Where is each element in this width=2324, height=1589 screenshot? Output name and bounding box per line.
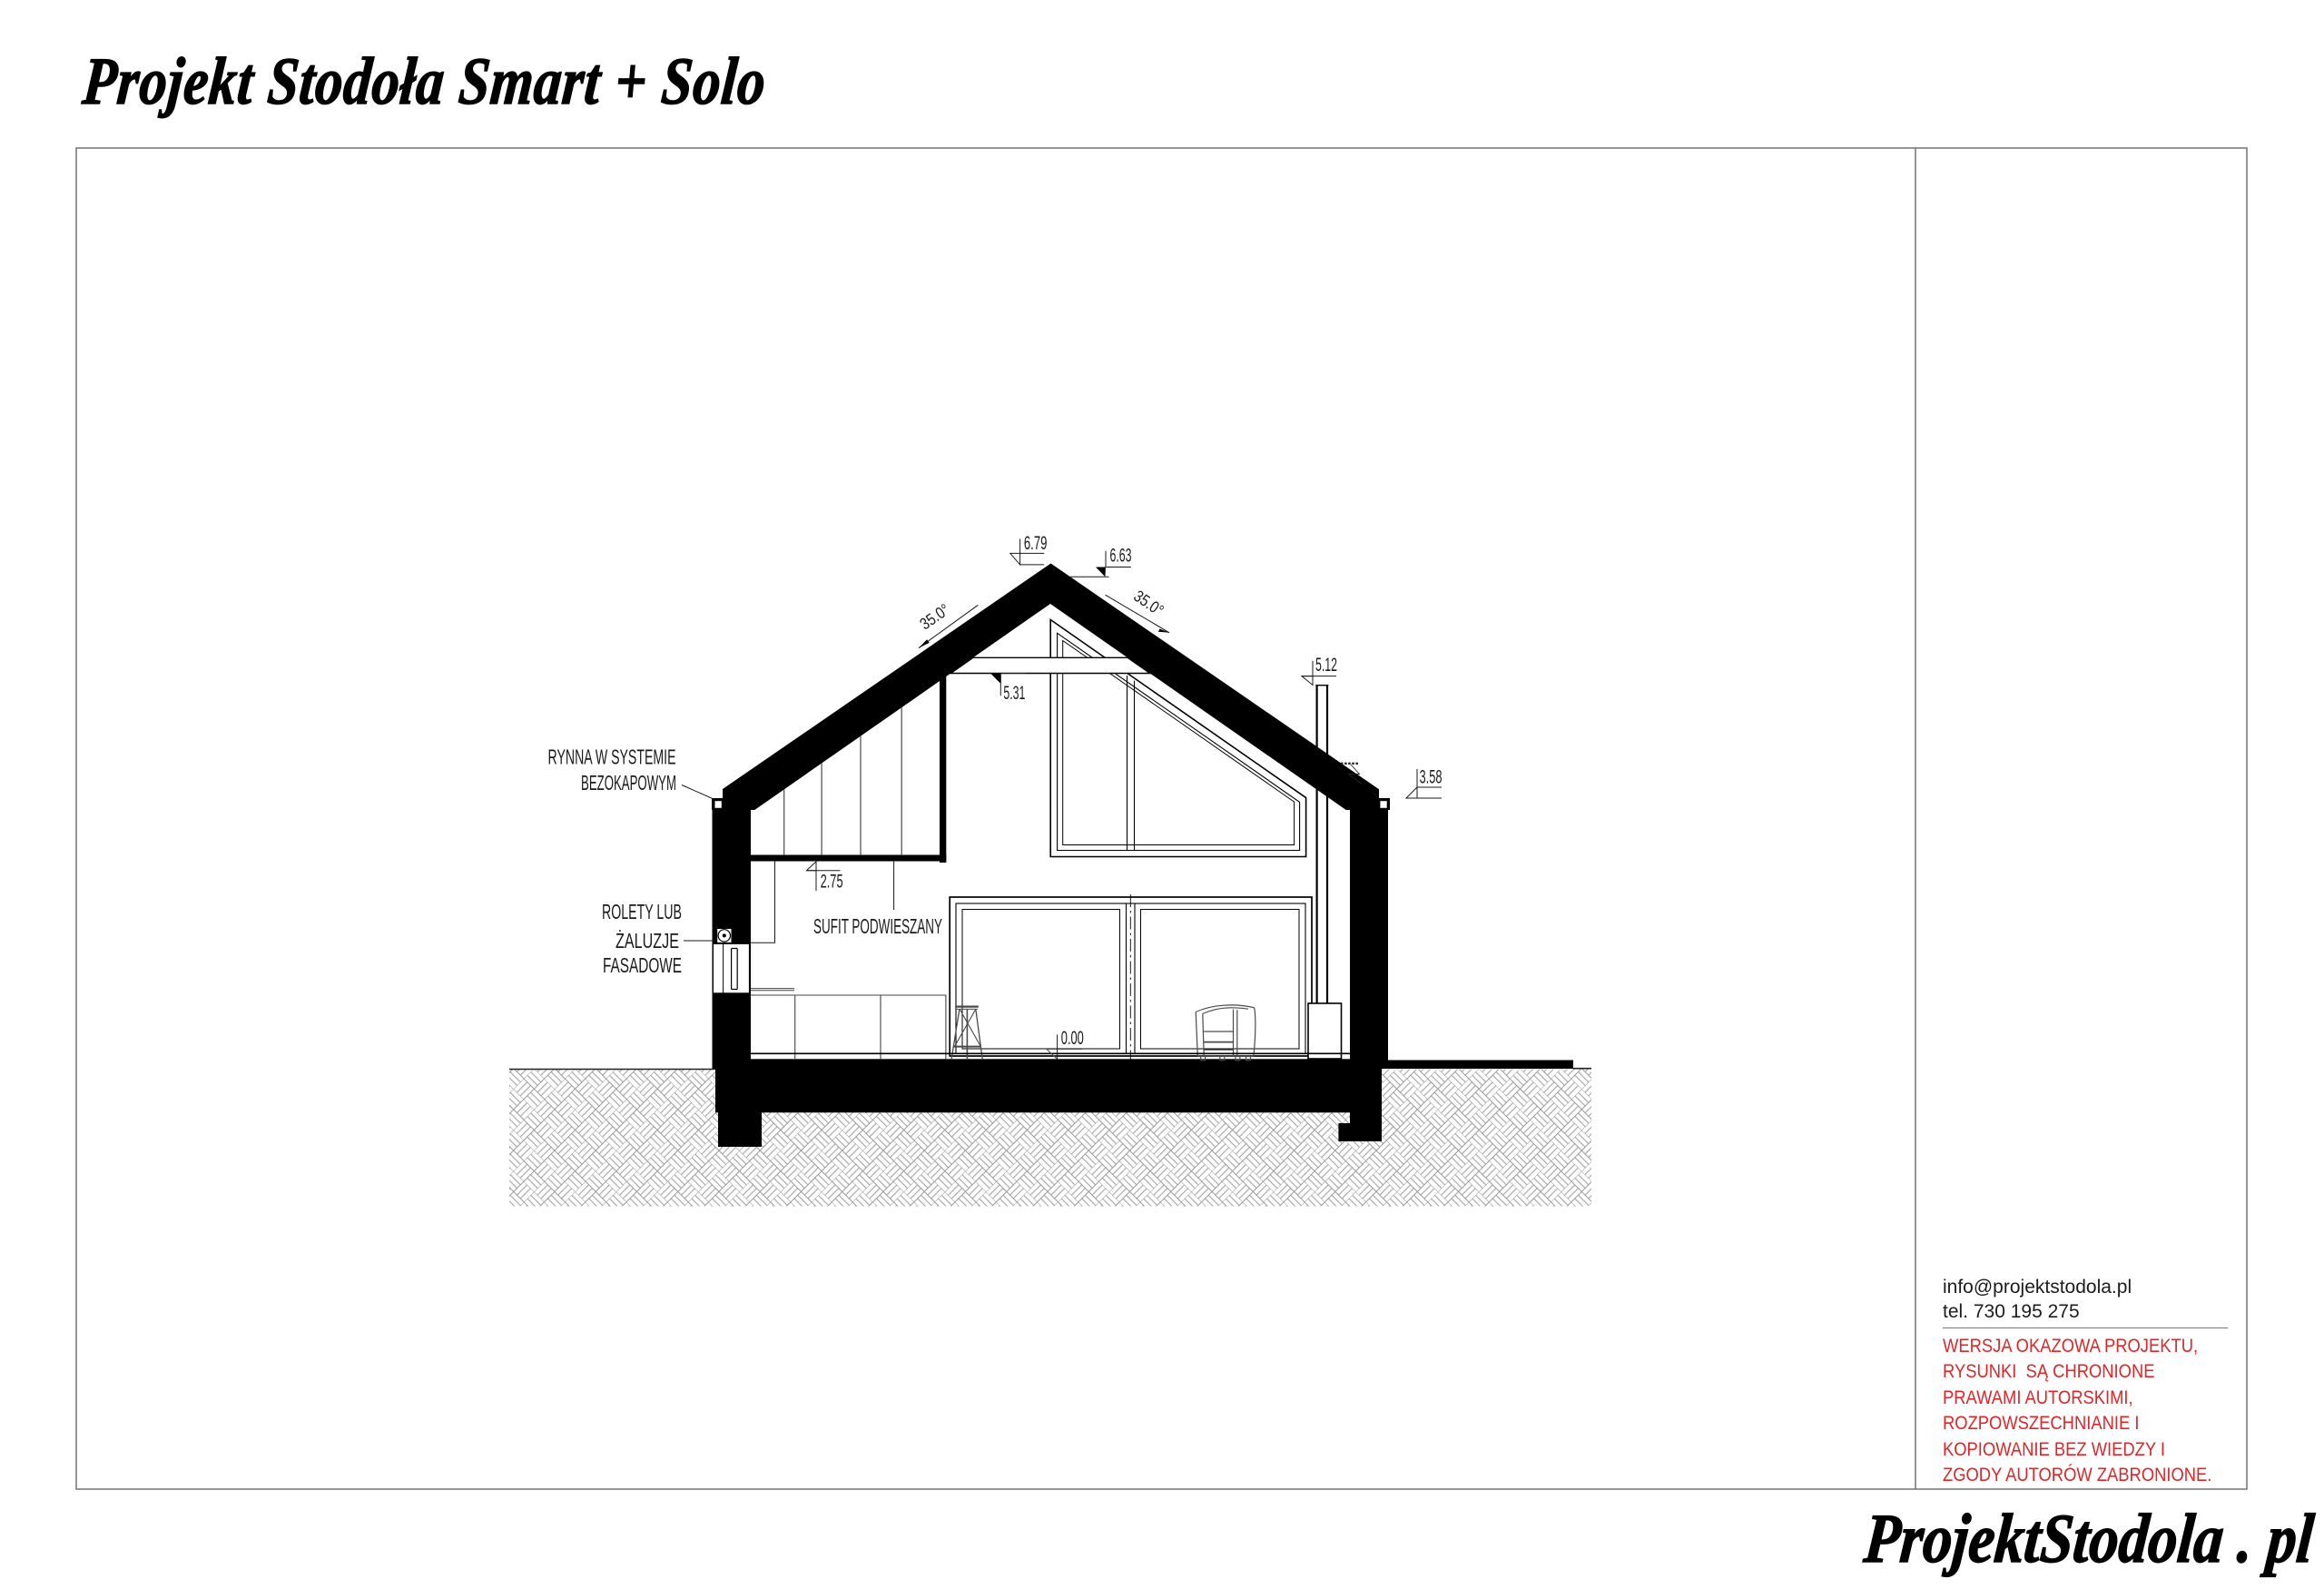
svg-text:BEZOKAPOWYM: BEZOKAPOWYM <box>581 771 676 794</box>
svg-text:ROLETY LUB: ROLETY LUB <box>602 900 682 923</box>
svg-text:ŻALUZJE: ŻALUZJE <box>615 929 679 952</box>
svg-text:SUFIT PODWIESZANY: SUFIT PODWIESZANY <box>813 914 942 938</box>
svg-text:5.31: 5.31 <box>1003 683 1025 704</box>
svg-text:3.58: 3.58 <box>1420 767 1443 788</box>
svg-text:5.12: 5.12 <box>1315 655 1337 676</box>
svg-text:RYNNA W SYSTEMIE: RYNNA W SYSTEMIE <box>548 745 676 769</box>
svg-text:6.63: 6.63 <box>1110 546 1132 567</box>
svg-text:35.0°: 35.0° <box>1130 587 1167 619</box>
svg-text:6.79: 6.79 <box>1024 533 1048 554</box>
svg-text:0.00: 0.00 <box>1061 1028 1084 1049</box>
svg-text:35.0°: 35.0° <box>917 600 953 633</box>
svg-text:FASADOWE: FASADOWE <box>603 953 682 977</box>
svg-text:2.75: 2.75 <box>821 872 843 893</box>
